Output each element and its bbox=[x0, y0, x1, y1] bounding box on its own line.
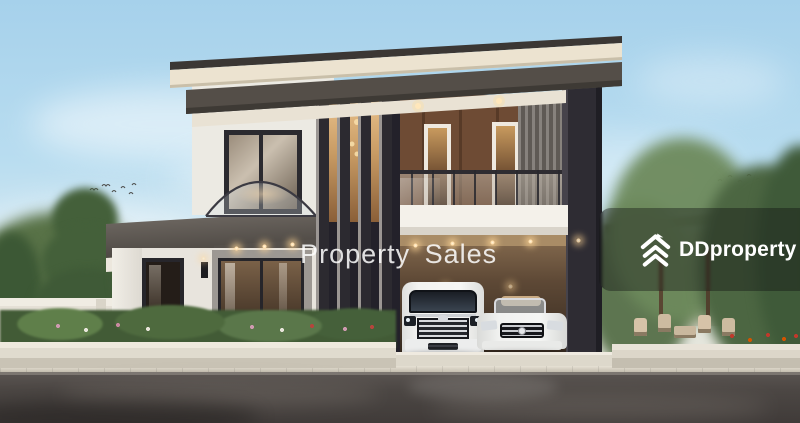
porch-downlight bbox=[290, 242, 295, 247]
white-mpv-van bbox=[402, 282, 484, 356]
road-edge-highlight bbox=[0, 372, 800, 375]
ddproperty-chevron-house-icon bbox=[639, 230, 672, 270]
sconce-glow bbox=[201, 256, 206, 261]
car-bumper bbox=[482, 341, 562, 350]
balcony-slab bbox=[386, 205, 568, 235]
brand-logo-box: DDproperty bbox=[599, 208, 800, 291]
watermark-text: Property Sales bbox=[300, 239, 497, 270]
patio-chair bbox=[658, 314, 671, 332]
car-emblem bbox=[518, 327, 526, 335]
patio-table bbox=[674, 326, 696, 338]
car-headlight bbox=[547, 320, 564, 331]
column-sconce-light bbox=[576, 238, 581, 243]
van-windshield bbox=[409, 290, 477, 313]
white-convertible-car bbox=[477, 296, 567, 356]
planter-wall-right bbox=[612, 344, 800, 368]
brand-name: DDproperty bbox=[679, 238, 797, 262]
van-emblem bbox=[438, 315, 448, 322]
porch-downlight bbox=[262, 244, 267, 249]
wall-sconce-light bbox=[201, 262, 208, 278]
van-intake bbox=[428, 343, 458, 350]
car-reflection bbox=[408, 374, 558, 400]
van-headlight bbox=[404, 316, 416, 326]
garage-backwall-light bbox=[508, 284, 513, 289]
listing-photo: Property Sales DDproperty bbox=[0, 0, 800, 423]
porch-downlight bbox=[234, 246, 239, 251]
flower-cluster bbox=[0, 318, 396, 340]
garage-downlight bbox=[528, 239, 533, 244]
roof-stack bbox=[0, 0, 800, 160]
planter-wall-left bbox=[0, 342, 396, 368]
car-headlight bbox=[481, 320, 498, 331]
patio-chair bbox=[634, 318, 647, 336]
patio-chair bbox=[698, 315, 711, 333]
